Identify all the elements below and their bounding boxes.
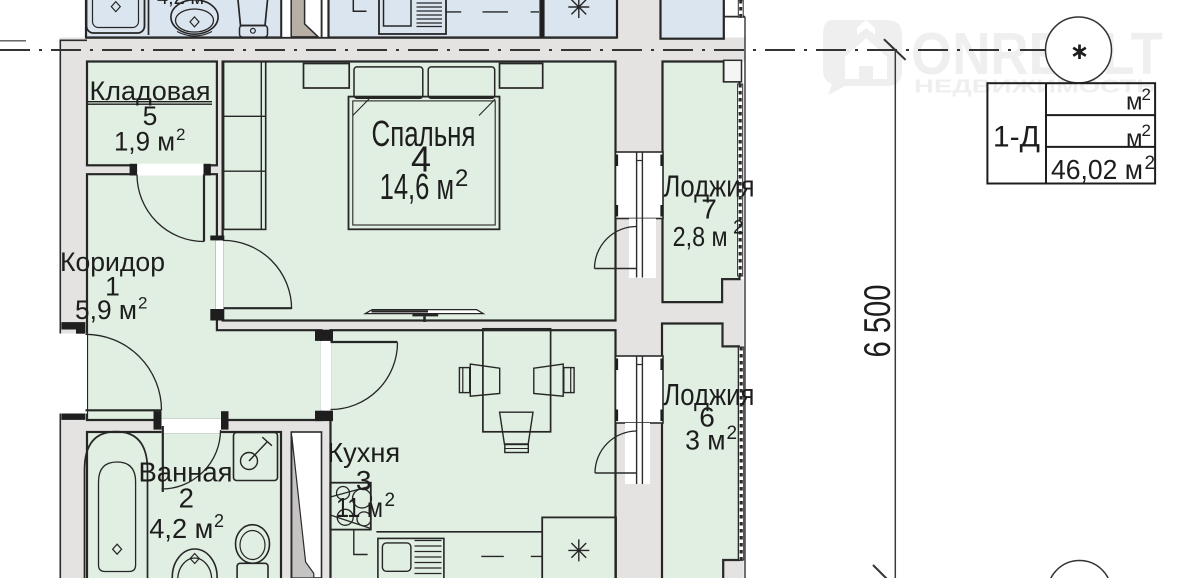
svg-text:2: 2 bbox=[214, 511, 224, 531]
svg-text:11 м: 11 м bbox=[336, 492, 383, 523]
svg-text:4,2 м: 4,2 м bbox=[149, 513, 213, 544]
svg-text:14,6 м: 14,6 м bbox=[380, 166, 455, 207]
svg-text:5,9 м: 5,9 м bbox=[75, 295, 137, 325]
svg-text:НЕДВИЖИМОСТЬ: НЕДВИЖИМОСТЬ bbox=[914, 76, 1156, 97]
svg-text:3 м: 3 м bbox=[685, 425, 726, 456]
svg-text:2: 2 bbox=[733, 218, 744, 239]
svg-text:2: 2 bbox=[179, 483, 194, 514]
svg-text:46,02 м: 46,02 м bbox=[1051, 154, 1143, 185]
svg-text:1,9 м: 1,9 м bbox=[114, 127, 175, 157]
svg-text:2: 2 bbox=[138, 294, 147, 313]
svg-text:1-Д: 1-Д bbox=[993, 121, 1040, 154]
svg-text:2: 2 bbox=[727, 423, 738, 444]
svg-text:2: 2 bbox=[1145, 153, 1156, 174]
svg-text:4,2 м: 4,2 м bbox=[157, 0, 204, 9]
svg-text:6 500: 6 500 bbox=[857, 285, 898, 358]
svg-text:Кухня: Кухня bbox=[327, 437, 400, 468]
svg-text:м: м bbox=[1126, 126, 1143, 153]
svg-text:2: 2 bbox=[455, 165, 468, 192]
svg-text:2,8 м: 2,8 м bbox=[673, 221, 728, 252]
svg-text:7: 7 bbox=[701, 194, 717, 225]
svg-text:2: 2 bbox=[1142, 121, 1151, 140]
svg-text:2: 2 bbox=[176, 125, 185, 144]
svg-text:2: 2 bbox=[1142, 85, 1151, 104]
svg-text:2: 2 bbox=[385, 490, 396, 511]
svg-text:м: м bbox=[1126, 89, 1143, 116]
